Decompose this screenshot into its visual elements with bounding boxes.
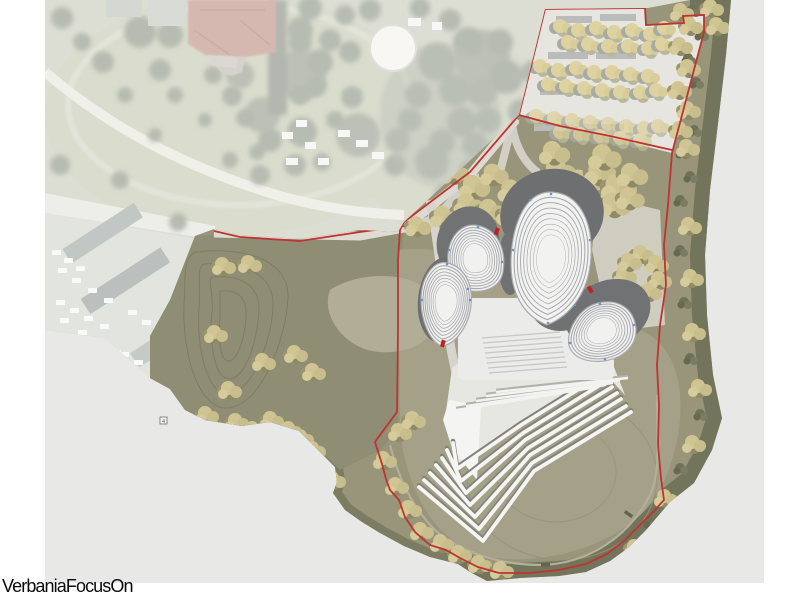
svg-text:4: 4 — [162, 419, 165, 425]
